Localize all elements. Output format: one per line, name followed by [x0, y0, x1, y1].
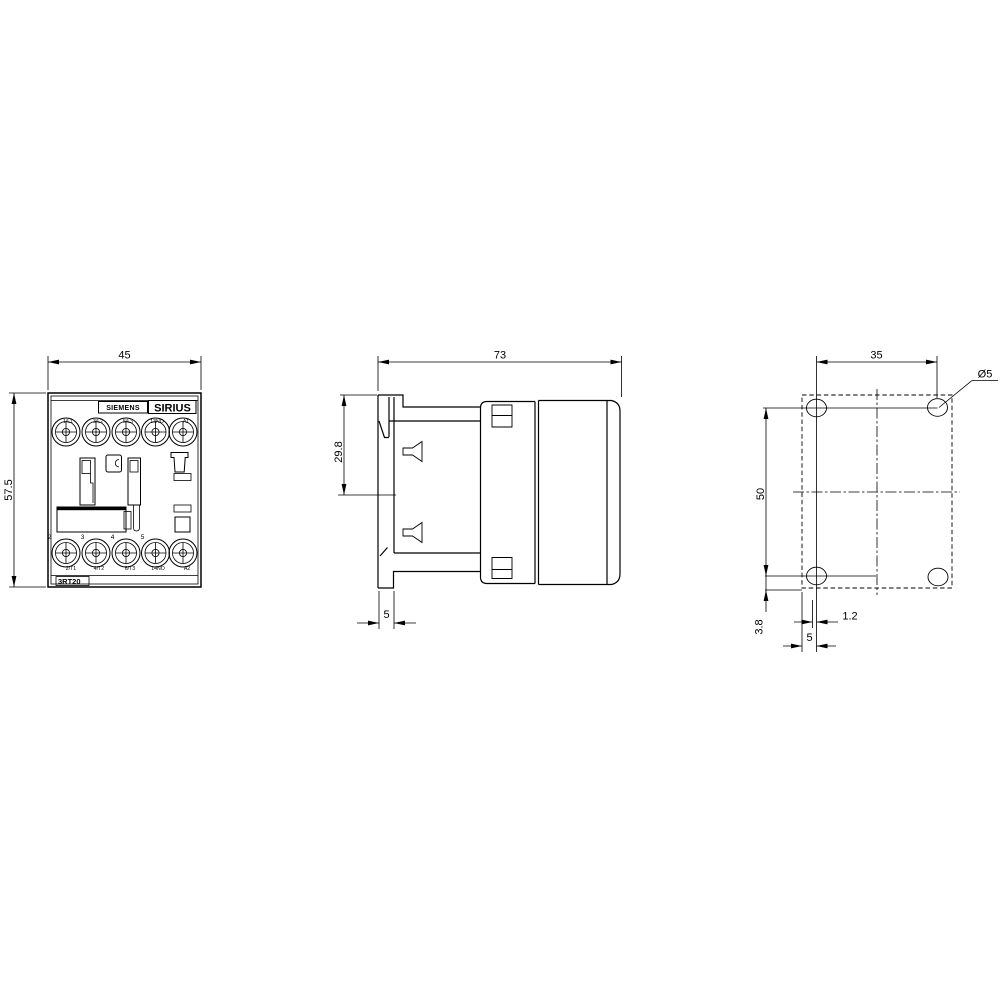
- terminal-screw: [169, 539, 197, 567]
- terminal-screw: [82, 539, 110, 567]
- nameplate-side-tab: [124, 512, 131, 530]
- dim-value: 73: [494, 350, 506, 362]
- dim-hole-to-edge-3-8: 3.8: [754, 576, 769, 635]
- hole-axis-lines: [763, 356, 938, 652]
- pole-number: 2: [48, 534, 52, 541]
- front-band-lines: [51, 401, 198, 576]
- dim-arrow: [368, 621, 379, 626]
- dim-value: 29.8: [333, 441, 345, 462]
- center-latch: [106, 455, 122, 472]
- aux-slot-1: [174, 474, 191, 481]
- dim-value: 3.8: [754, 619, 766, 634]
- terminal-label: 1/L1: [63, 419, 73, 425]
- model-plate: 3RT20: [56, 577, 89, 587]
- hole-diameter-callout: Ø5: [939, 369, 998, 408]
- plate-outline: [378, 395, 480, 588]
- terminal-label: 14NO: [151, 566, 165, 572]
- terminal-label: 5/L3: [123, 419, 133, 425]
- dim-arrow: [817, 360, 828, 365]
- leader-line: [939, 381, 998, 408]
- page: { "front_view": { "brand_label": "SIEMEN…: [0, 0, 1000, 1000]
- dim-lines: [338, 395, 396, 495]
- snap-tabs: [403, 442, 422, 543]
- dim-arrow: [764, 408, 769, 419]
- dim-foot-5: 5: [357, 591, 416, 629]
- left-pole-step: [91, 474, 94, 504]
- dim-width-45: 45: [48, 350, 201, 391]
- nameplate-window: [57, 507, 126, 532]
- side-view: 73 29.8 5: [333, 350, 622, 630]
- dim-value: 5: [806, 632, 812, 644]
- dim-arrow: [12, 576, 17, 587]
- mounting-hole: [928, 399, 948, 417]
- brand-label: SIEMENS: [106, 405, 140, 412]
- right-pole-insert: [130, 461, 138, 473]
- terminal-label: A2: [184, 566, 190, 572]
- mounting-hole: [928, 568, 948, 586]
- left-pole-insert: [82, 461, 91, 474]
- dim-arrow: [791, 644, 802, 649]
- dim-value: 45: [118, 350, 130, 362]
- terminal-labels-bottom: 2/T1 4/T2 6/T3 14NO A2: [66, 566, 190, 572]
- dim-arrow: [12, 393, 17, 404]
- dim-value: 1.2: [842, 611, 857, 623]
- pole-number: 4: [111, 534, 115, 541]
- model-label: 3RT20: [58, 577, 81, 586]
- dim-height-57-5: 57.5: [3, 393, 46, 587]
- dim-arrow: [342, 395, 347, 406]
- side-mounting-plate: [378, 395, 480, 588]
- drilling-plan: 35 50 3.8 1.2 5 Ø5: [754, 350, 999, 653]
- dim-clip-29-8: 29.8: [333, 395, 396, 495]
- dim-arrow: [342, 484, 347, 495]
- dim-depth-73: 73: [378, 350, 622, 398]
- aux-t-tab: [171, 453, 188, 473]
- right-pole-strip: [134, 505, 140, 531]
- dim-hole-spacing-50: 50: [755, 408, 768, 576]
- dim-arrow: [764, 590, 769, 601]
- brand-plate: SIEMENS SIRIUS: [99, 401, 197, 415]
- dim-center-offset-1-2: 1.2: [794, 611, 858, 625]
- terminal-screw: [52, 539, 80, 567]
- dim-lines: [378, 356, 622, 397]
- side-body: [481, 401, 621, 585]
- terminal-label: 6/T3: [125, 566, 135, 572]
- dim-value: 57.5: [3, 479, 15, 500]
- front-view: SIEMENS SIRIUS 1/L1 3/L2 5/L3 13NO A1: [3, 350, 201, 588]
- terminal-label: 4/T2: [94, 566, 104, 572]
- center-latch-notch: [115, 460, 119, 467]
- terminal-screws-bottom: [52, 539, 197, 567]
- dim-arrow: [394, 621, 405, 626]
- dim-edge-to-hole-5: 5: [783, 632, 836, 648]
- dim-value: Ø5: [978, 369, 993, 381]
- dim-arrow: [802, 620, 813, 625]
- dim-arrow: [611, 360, 622, 365]
- pole-number: 3: [81, 534, 85, 541]
- pole-number: 5: [141, 534, 145, 541]
- series-label: SIRIUS: [154, 403, 191, 415]
- dim-value: 5: [383, 609, 389, 621]
- terminal-label: 13NO: [150, 419, 164, 425]
- dim-arrow: [48, 360, 59, 365]
- dim-arrow: [764, 565, 769, 576]
- aux-square: [175, 517, 190, 532]
- dim-arrow: [817, 644, 828, 649]
- terminal-screw: [142, 539, 170, 567]
- terminal-labels-top: 1/L1 3/L2 5/L3 13NO A1: [63, 419, 189, 425]
- terminal-side-windows: [492, 405, 512, 579]
- terminal-label: A1: [183, 419, 189, 425]
- terminal-label: 3/L2: [93, 419, 103, 425]
- dim-arrow: [817, 620, 828, 625]
- center-lines: [793, 389, 960, 595]
- dim-arrow: [926, 360, 937, 365]
- dim-arrow: [190, 360, 201, 365]
- nameplate-top-band: [57, 507, 126, 510]
- dim-value: 50: [755, 488, 767, 500]
- aux-slot-2: [174, 505, 191, 512]
- terminal-screw: [112, 539, 140, 567]
- terminal-label: 2/T1: [66, 566, 76, 572]
- dim-value: 35: [870, 350, 882, 362]
- contactor-dimension-drawing: SIEMENS SIRIUS 1/L1 3/L2 5/L3 13NO A1: [0, 0, 1000, 1000]
- body-outline: [481, 401, 621, 585]
- dim-arrow: [378, 360, 389, 365]
- front-center-details: [57, 453, 191, 533]
